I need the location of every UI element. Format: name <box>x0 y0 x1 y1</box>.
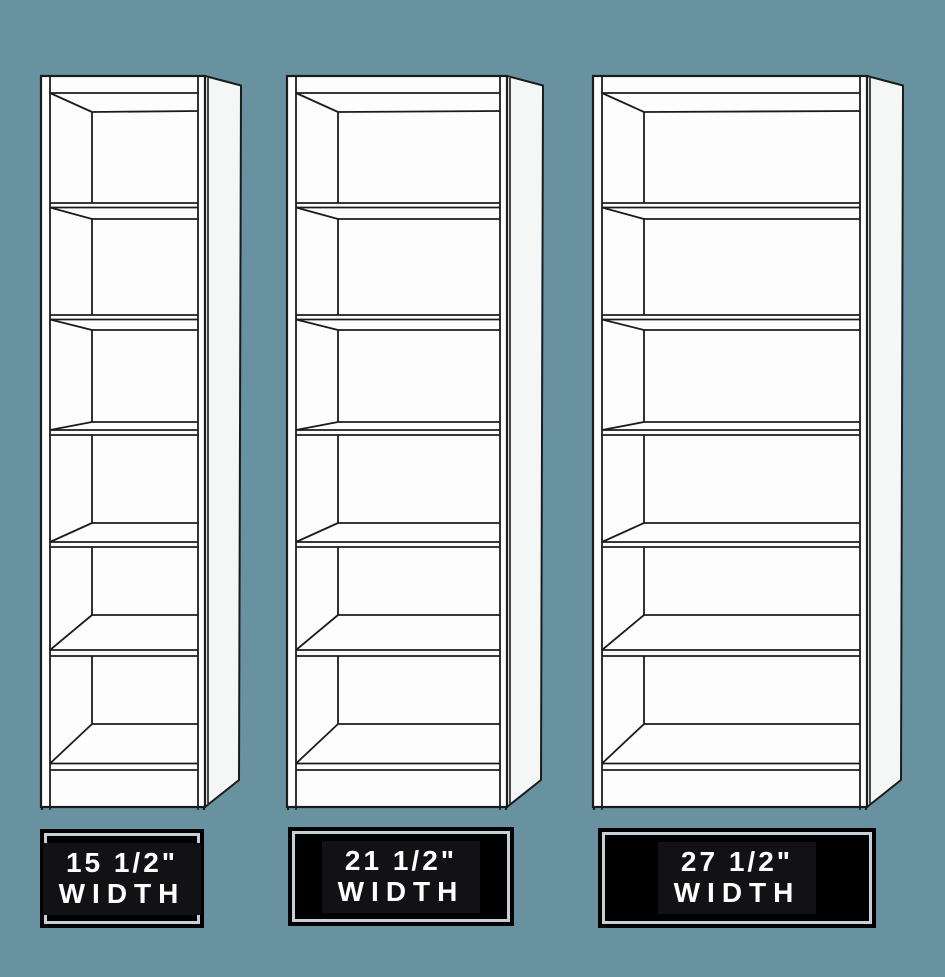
width-label-text: 21 1/2" WIDTH <box>322 841 481 913</box>
width-value: 21 1/2" <box>338 845 465 876</box>
width-value: 15 1/2" <box>59 847 186 878</box>
width-label-small: 15 1/2" WIDTH <box>40 829 204 928</box>
width-label-medium: 21 1/2" WIDTH <box>288 827 514 926</box>
bookcase-width-comparison: 15 1/2" WIDTH 21 1/2" WIDTH 27 1/2" WIDT… <box>0 0 945 977</box>
bookcase-illustration-large <box>593 76 903 810</box>
width-label-text: 27 1/2" WIDTH <box>658 842 817 914</box>
width-value: 27 1/2" <box>674 846 801 877</box>
width-caption: WIDTH <box>59 878 186 909</box>
width-label-text: 15 1/2" WIDTH <box>43 843 202 915</box>
width-label-large: 27 1/2" WIDTH <box>598 828 876 928</box>
width-label-frame: 15 1/2" WIDTH <box>44 833 200 924</box>
width-label-frame: 27 1/2" WIDTH <box>602 832 872 924</box>
width-label-frame: 21 1/2" WIDTH <box>292 831 510 922</box>
bookcase-illustration-small <box>41 76 241 810</box>
width-caption: WIDTH <box>674 877 801 908</box>
bookcase-illustration-medium <box>287 76 543 810</box>
width-caption: WIDTH <box>338 876 465 907</box>
